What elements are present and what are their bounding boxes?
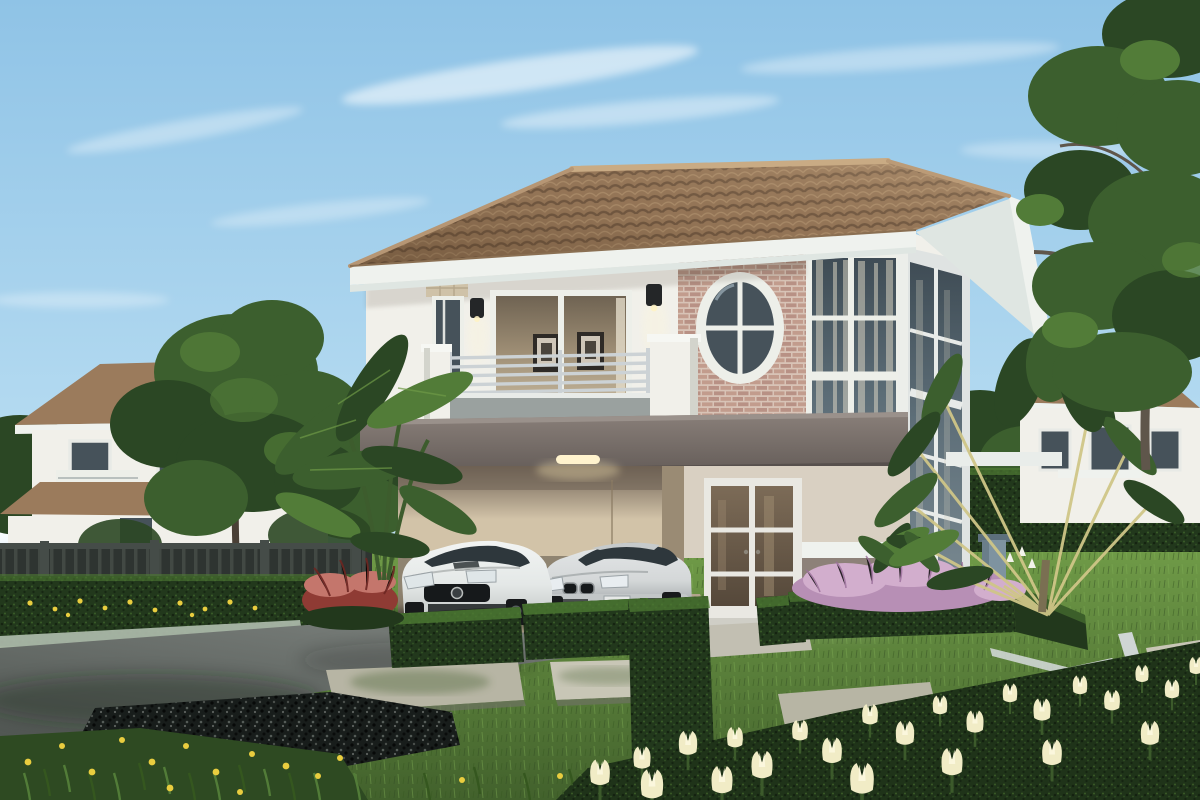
hedge-block-tall bbox=[628, 596, 714, 758]
oval-window bbox=[696, 272, 784, 384]
house-rendering bbox=[0, 0, 1200, 800]
hedge-block bbox=[388, 607, 524, 668]
garden-beam bbox=[946, 452, 1062, 466]
sedan-grille bbox=[563, 583, 577, 594]
ceiling-light bbox=[556, 455, 600, 464]
rendered-photo bbox=[0, 0, 1200, 800]
